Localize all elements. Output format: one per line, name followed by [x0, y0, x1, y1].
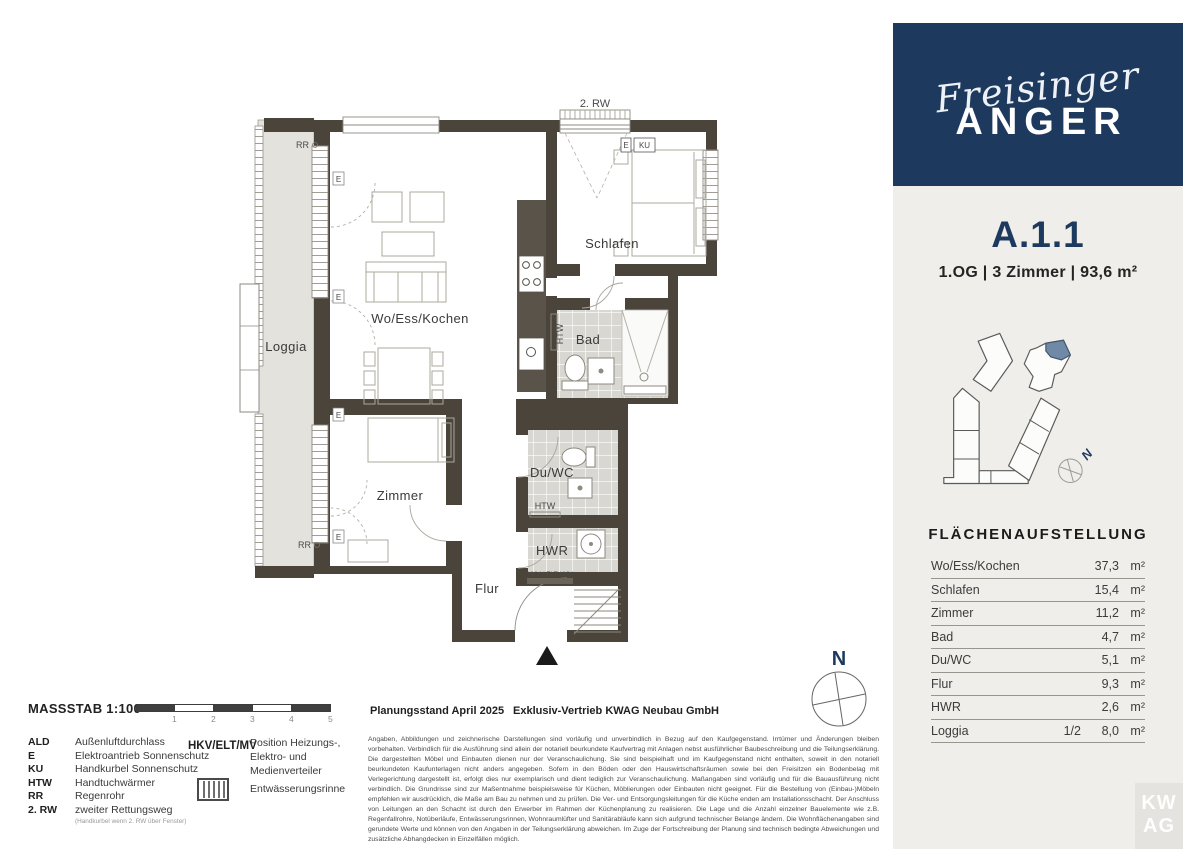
row-label: HWR — [931, 700, 1051, 714]
rw-note: (Handkurbel wenn 2. RW über Fenster) — [75, 817, 209, 826]
table-row: Schlafen15,4m² — [931, 579, 1145, 603]
row-fraction: 1/2 — [1051, 724, 1081, 738]
scale-tick: 3 — [250, 714, 255, 724]
row-value: 4,7 — [1081, 630, 1119, 644]
label-rr-bottom: RR — [298, 540, 311, 550]
row-value: 9,3 — [1081, 677, 1119, 691]
scale-tick: 4 — [289, 714, 294, 724]
e-ku-marks: E KU — [621, 138, 655, 152]
disclaimer-text: Angaben, Abbildungen und zeichnerische D… — [368, 735, 879, 845]
abbr-row: ALDAußenluftdurchlass — [28, 736, 209, 750]
abbr-row: HTWHandtuchwärmer — [28, 777, 209, 791]
label-living: Wo/Ess/Kochen — [371, 311, 468, 326]
label-e-1: E — [336, 175, 341, 184]
unit-meta: 1.OG | 3 Zimmer | 93,6 m² — [893, 264, 1183, 282]
abbreviation-legend: ALDAußenluftdurchlass EElektroantrieb So… — [28, 736, 209, 826]
compass-n-label: N — [832, 648, 846, 670]
shower — [622, 310, 668, 396]
row-label: Du/WC — [931, 653, 1051, 667]
window-2rw — [560, 110, 630, 133]
row-unit: m² — [1119, 559, 1145, 573]
row-value: 5,1 — [1081, 653, 1119, 667]
hkv-legend-key: HKV/ELT/MV — [188, 740, 257, 752]
label-flur: Flur — [475, 581, 499, 596]
area-table: Wo/Ess/Kochen37,3m² Schlafen15,4m² Zimme… — [931, 555, 1145, 743]
row-value: 8,0 — [1081, 724, 1119, 738]
scale-label: MASSSTAB 1:100 — [28, 701, 141, 716]
label-e-3: E — [336, 411, 341, 420]
floor-plan: Wo/Ess/Kochen Schlafen Zimmer Bad Du/WC … — [0, 0, 884, 700]
abbr-key: E — [28, 750, 75, 764]
site-building-5 — [1009, 398, 1060, 480]
area-table-title: FLÄCHENAUFSTELLUNG — [893, 526, 1183, 543]
kitchen-counter — [517, 200, 546, 392]
room-living — [330, 132, 546, 399]
label-ku: KU — [639, 141, 650, 150]
abbr-desc: Regenrohr — [75, 790, 125, 804]
abbr-desc: zweiter Rettungsweg — [75, 804, 172, 818]
site-plan: N — [920, 302, 1156, 508]
abbr-key: HTW — [28, 777, 75, 791]
scale-tick: 1 — [172, 714, 177, 724]
compass: N — [803, 645, 875, 733]
label-bad: Bad — [576, 332, 600, 347]
table-row: Du/WC5,1m² — [931, 649, 1145, 673]
row-label: Flur — [931, 677, 1051, 691]
scale-tick: 2 — [211, 714, 216, 724]
abbr-key: 2. RW — [28, 804, 75, 818]
label-htw-bad: HTW — [555, 323, 565, 344]
abbr-row: EElektroantrieb Sonnenschutz — [28, 750, 209, 764]
scale-seg — [214, 704, 253, 712]
drain-channel-label: Entwässerungsrinne — [250, 783, 345, 795]
row-unit: m² — [1119, 724, 1145, 738]
abbr-key: RR — [28, 790, 75, 804]
site-building-3 — [944, 388, 979, 483]
row-label: Wo/Ess/Kochen — [931, 559, 1051, 573]
entrance-marker — [536, 646, 558, 665]
row-value: 11,2 — [1081, 606, 1119, 620]
label-schlafen: Schlafen — [585, 236, 639, 251]
label-rr-top: RR — [296, 140, 309, 150]
label-duwc: Du/WC — [530, 465, 574, 480]
abbr-row: 2. RWzweiter Rettungsweg — [28, 804, 209, 818]
drain-channel-icon — [197, 778, 229, 801]
row-value: 37,3 — [1081, 559, 1119, 573]
row-unit: m² — [1119, 700, 1145, 714]
row-label: Bad — [931, 630, 1051, 644]
row-unit: m² — [1119, 606, 1145, 620]
row-unit: m² — [1119, 630, 1145, 644]
watermark-line2: AG — [1135, 815, 1183, 838]
site-building-1 — [973, 333, 1012, 391]
abbr-desc: Außenluftdurchlass — [75, 736, 165, 750]
abbr-key: KU — [28, 763, 75, 777]
table-row: Wo/Ess/Kochen37,3m² — [931, 555, 1145, 579]
label-loggia: Loggia — [265, 339, 307, 354]
abbr-row: KUHandkurbel Sonnenschutz — [28, 763, 209, 777]
kitchen-sink — [519, 338, 544, 370]
label-htw-duwc: HTW — [535, 501, 556, 511]
label-hwr: HWR — [536, 543, 568, 558]
row-value: 15,4 — [1081, 583, 1119, 597]
planning-status: Planungsstand April 2025 — [370, 705, 504, 717]
watermark-line1: KW — [1135, 792, 1183, 815]
table-row: Loggia1/28,0m² — [931, 720, 1145, 744]
hkv-legend-desc: Position Heizungs-, Elektro- und Medienv… — [250, 736, 370, 778]
table-row: Bad4,7m² — [931, 626, 1145, 650]
row-value: 2,6 — [1081, 700, 1119, 714]
table-row: HWR2,6m² — [931, 696, 1145, 720]
label-hkv: HKV / ELT / MV — [527, 571, 573, 578]
site-compass-n: N — [1078, 445, 1096, 462]
scale-seg — [253, 704, 292, 712]
table-row: Zimmer11,2m² — [931, 602, 1145, 626]
row-label: Schlafen — [931, 583, 1051, 597]
abbr-desc: Handkurbel Sonnenschutz — [75, 763, 198, 777]
row-unit: m² — [1119, 583, 1145, 597]
window-loggia-living — [312, 146, 328, 298]
label-e-schlafen: E — [623, 141, 628, 150]
window-living-top — [343, 117, 439, 133]
info-panel: Freisinger ANGER A.1.1 1.OG | 3 Zimmer |… — [893, 23, 1183, 849]
stove — [519, 256, 544, 292]
row-unit: m² — [1119, 677, 1145, 691]
unit-id: A.1.1 — [893, 214, 1183, 256]
sales-contact: Exklusiv-Vertrieb KWAG Neubau GmbH — [513, 705, 719, 717]
loggia-glazing-lower — [255, 414, 263, 566]
label-e-4: E — [336, 533, 341, 542]
row-label: Zimmer — [931, 606, 1051, 620]
label-zimmer: Zimmer — [377, 488, 424, 503]
kwag-watermark: KW AG — [1135, 783, 1183, 849]
abbr-row: RRRegenrohr — [28, 790, 209, 804]
row-unit: m² — [1119, 653, 1145, 667]
floorplan-sheet: Wo/Ess/Kochen Schlafen Zimmer Bad Du/WC … — [0, 0, 1200, 849]
table-row: Flur9,3m² — [931, 673, 1145, 697]
abbr-key: ALD — [28, 736, 75, 750]
abbr-desc: Handtuchwärmer — [75, 777, 155, 791]
scale-tick: 5 — [328, 714, 333, 724]
label-e-2: E — [336, 293, 341, 302]
brand-header: Freisinger ANGER — [893, 23, 1183, 186]
window-loggia-zimmer — [312, 425, 328, 543]
row-label: Loggia — [931, 724, 1051, 738]
scale-seg — [136, 704, 175, 712]
scale-seg — [292, 704, 331, 712]
loggia-planter — [240, 284, 259, 412]
scale-seg — [175, 704, 214, 712]
site-compass: N — [1059, 445, 1096, 482]
label-2rw: 2. RW — [580, 98, 611, 110]
scale-bar — [136, 704, 331, 712]
scale-ticks: 1 2 3 4 5 — [136, 714, 336, 726]
